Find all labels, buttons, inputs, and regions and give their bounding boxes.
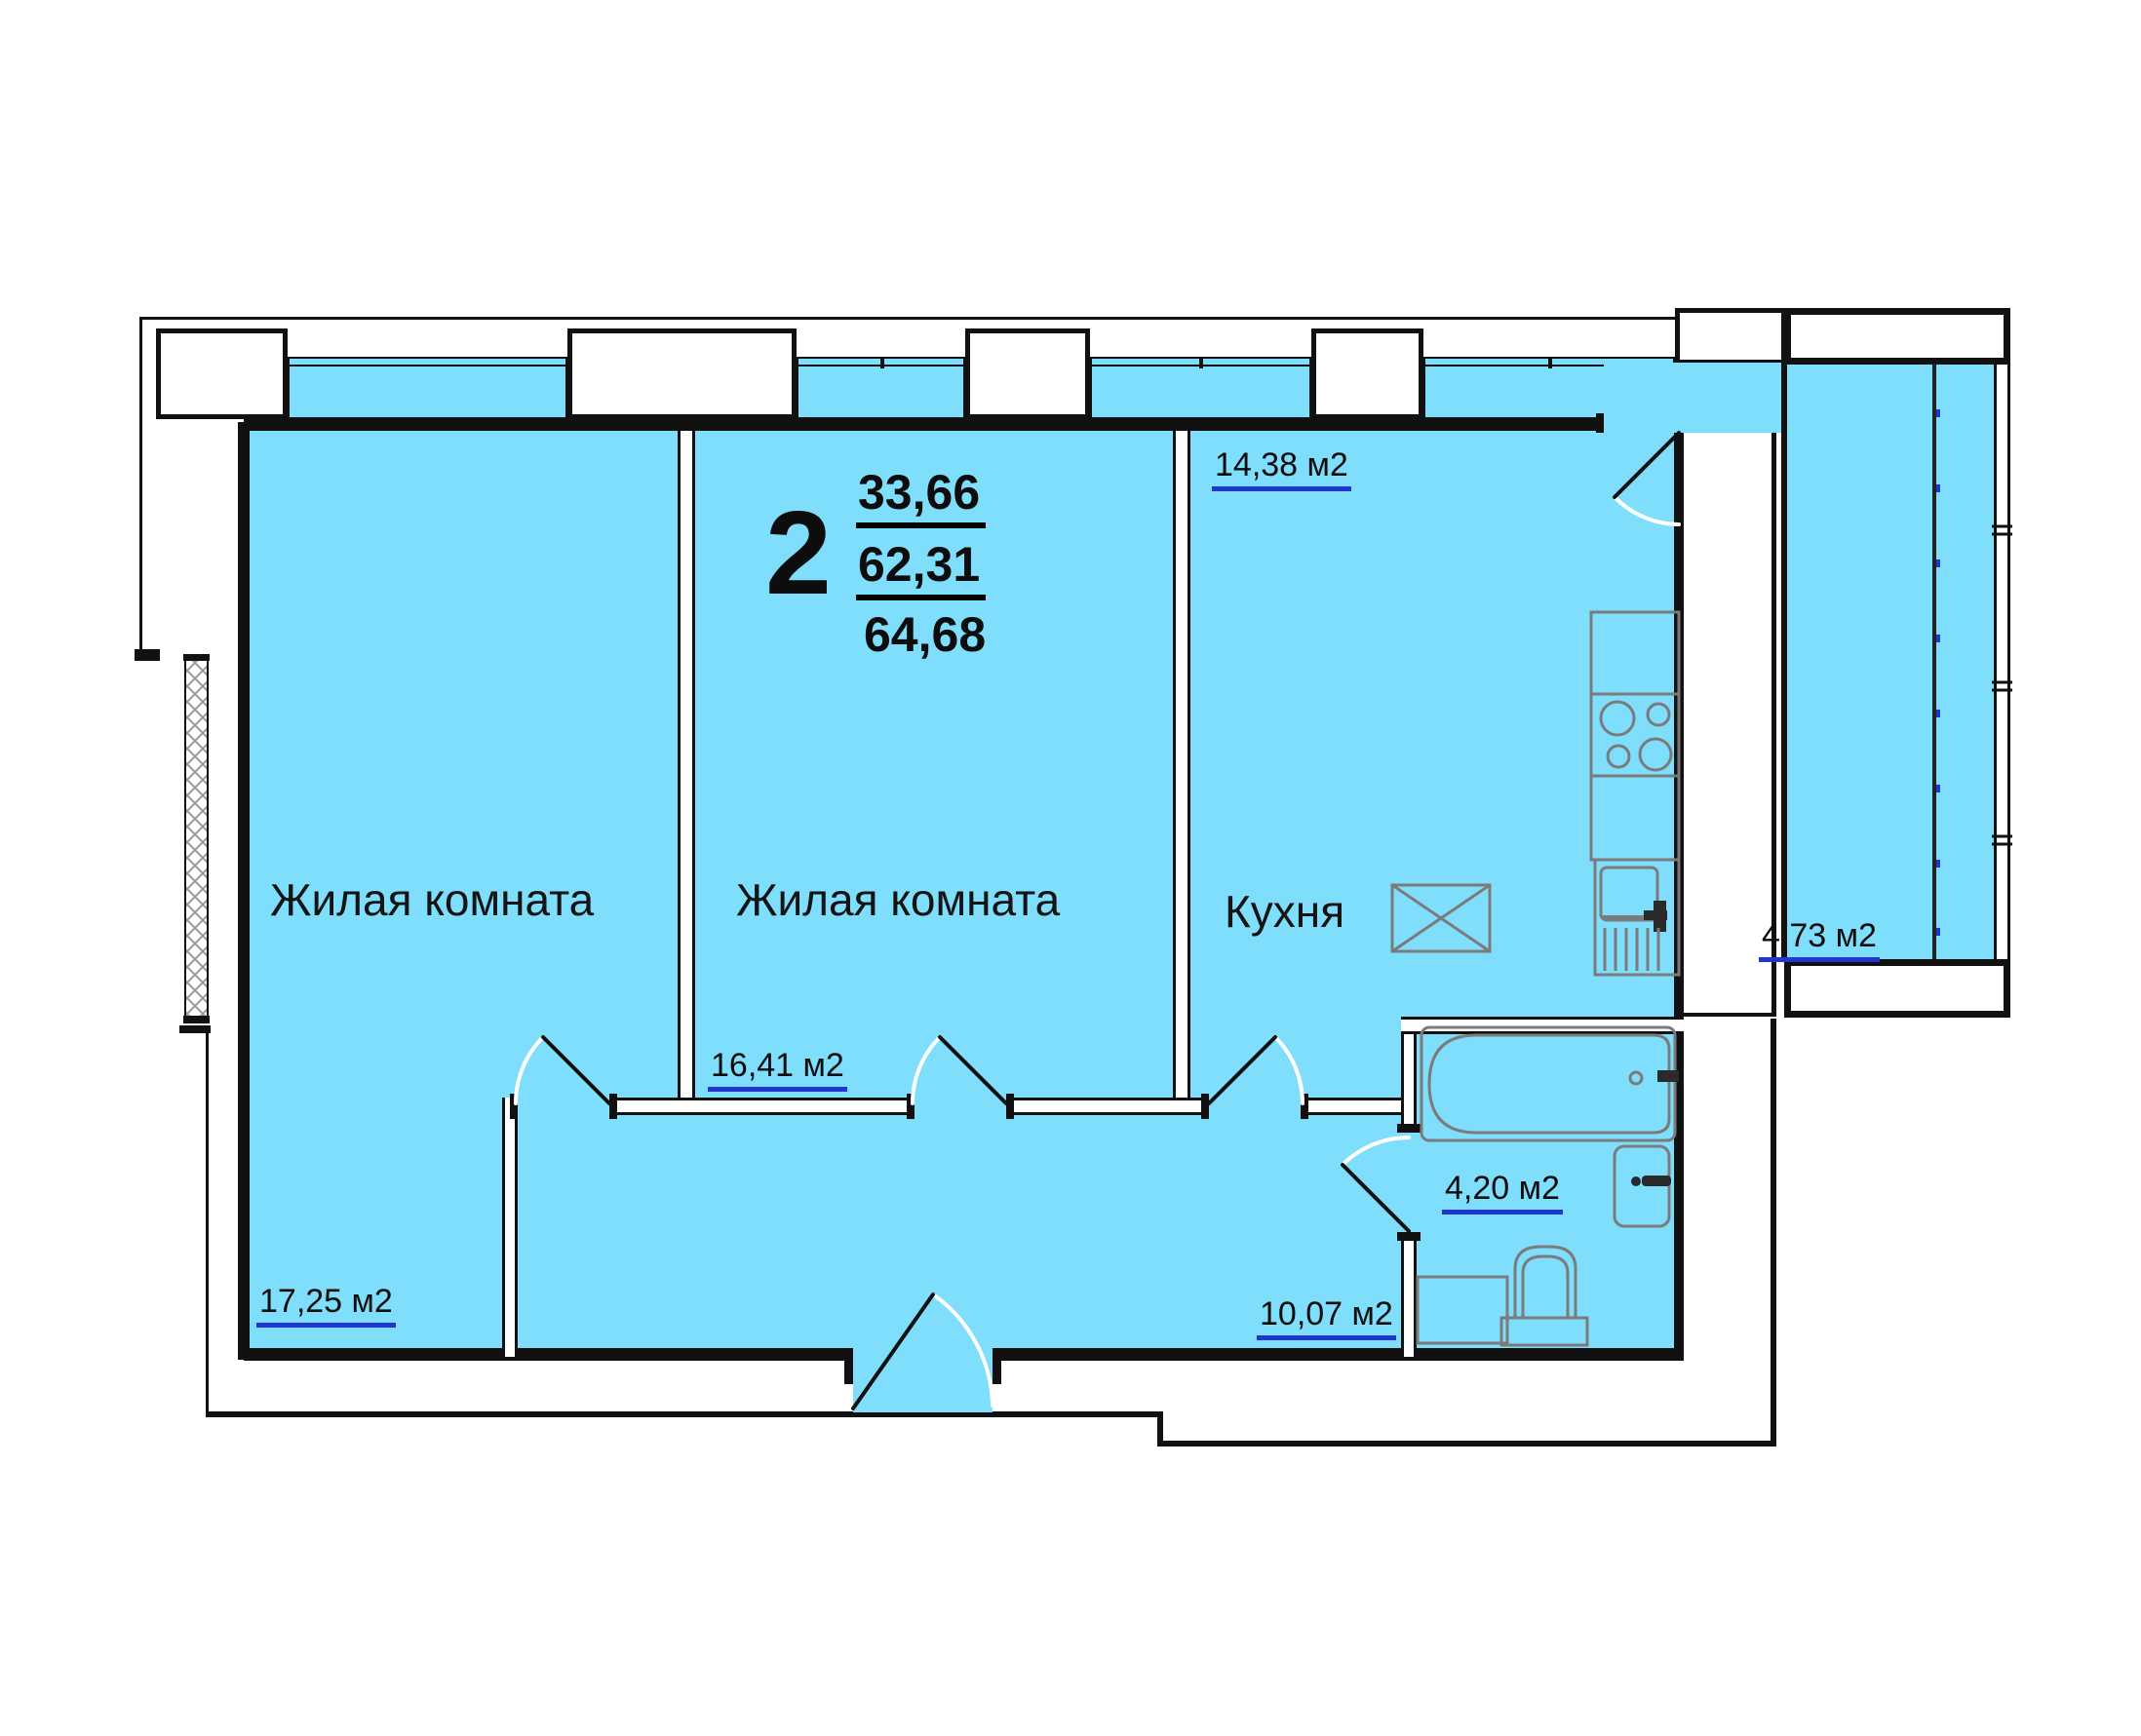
window-mullion bbox=[880, 357, 884, 368]
door-jamb bbox=[844, 1355, 853, 1384]
door-opening bbox=[915, 1094, 1006, 1119]
door-jamb bbox=[907, 1094, 915, 1119]
summary-total-area: 64,68 bbox=[862, 608, 992, 665]
wall-left bbox=[238, 422, 250, 1360]
window-niche bbox=[288, 357, 567, 417]
balcony-glazing-line bbox=[1932, 365, 1936, 961]
door-jamb bbox=[1397, 1232, 1421, 1241]
wall-pier bbox=[156, 328, 288, 419]
window-mullion bbox=[1199, 357, 1203, 368]
floor-plan: 2 33,66 62,31 64,68 Жилая комната Жилая … bbox=[0, 0, 2141, 1736]
hatch-strip bbox=[179, 654, 211, 1033]
window-mullion bbox=[1548, 357, 1552, 368]
door-opening bbox=[1209, 1094, 1301, 1119]
balcony-wall-bottom bbox=[1784, 959, 2010, 1018]
partition-room2-kitchen bbox=[1173, 431, 1190, 1101]
door-jamb bbox=[1301, 1094, 1308, 1119]
summary-living-area: 33,66 bbox=[856, 466, 986, 528]
area-label: 17,25 м2 bbox=[256, 1283, 396, 1328]
partition-hall-left bbox=[502, 1098, 518, 1357]
balcony-wall-left bbox=[1781, 365, 1787, 961]
outer-contour-bottom-b bbox=[1163, 1441, 1776, 1447]
balcony-wall-top bbox=[1784, 308, 2010, 365]
entry-door-opening bbox=[853, 1348, 993, 1412]
door-jamb bbox=[1006, 1094, 1014, 1119]
summary-rooms-count: 2 bbox=[765, 493, 832, 612]
wall-pier bbox=[1675, 308, 1786, 365]
summary-apartment-area: 62,31 bbox=[856, 538, 986, 600]
partition-bathroom-top bbox=[1401, 1017, 1684, 1034]
outer-contour-corner bbox=[135, 649, 160, 661]
balcony-doorway bbox=[1604, 363, 1781, 433]
area-label: 4,73 м2 bbox=[1759, 917, 1880, 962]
door-opening bbox=[1397, 1132, 1421, 1233]
area-label: 4,20 м2 bbox=[1442, 1170, 1563, 1215]
wall-pier bbox=[965, 328, 1090, 419]
door-jamb bbox=[1397, 1124, 1421, 1133]
room-label: Жилая комната bbox=[270, 873, 594, 926]
outer-contour-left bbox=[139, 317, 142, 658]
wall-pier bbox=[567, 328, 797, 419]
partition-room1-room2 bbox=[678, 431, 695, 1101]
door-jamb bbox=[609, 1094, 617, 1119]
wall-top bbox=[244, 417, 1684, 431]
outer-contour-bottom-a bbox=[206, 1411, 1163, 1417]
area-label: 10,07 м2 bbox=[1257, 1295, 1396, 1340]
outer-contour-right bbox=[1771, 1019, 1776, 1447]
balcony-glazing-frame bbox=[1994, 365, 2010, 961]
area-label: 14,38 м2 bbox=[1212, 446, 1351, 491]
room-label: Кухня bbox=[1225, 885, 1344, 938]
wall-right bbox=[1674, 433, 1684, 1361]
area-label: 16,41 м2 bbox=[708, 1047, 847, 1092]
door-jamb bbox=[993, 1355, 1001, 1384]
door-jamb bbox=[1201, 1094, 1209, 1119]
room-label: Жилая комната bbox=[736, 873, 1060, 926]
outer-contour-top bbox=[139, 317, 1786, 320]
door-jamb bbox=[1596, 413, 1604, 433]
wall-pier bbox=[1311, 328, 1423, 419]
outer-contour-left-lower bbox=[206, 1029, 209, 1417]
door-jamb bbox=[510, 1094, 518, 1119]
door-opening bbox=[518, 1094, 609, 1119]
balcony-floor bbox=[1787, 365, 1994, 961]
